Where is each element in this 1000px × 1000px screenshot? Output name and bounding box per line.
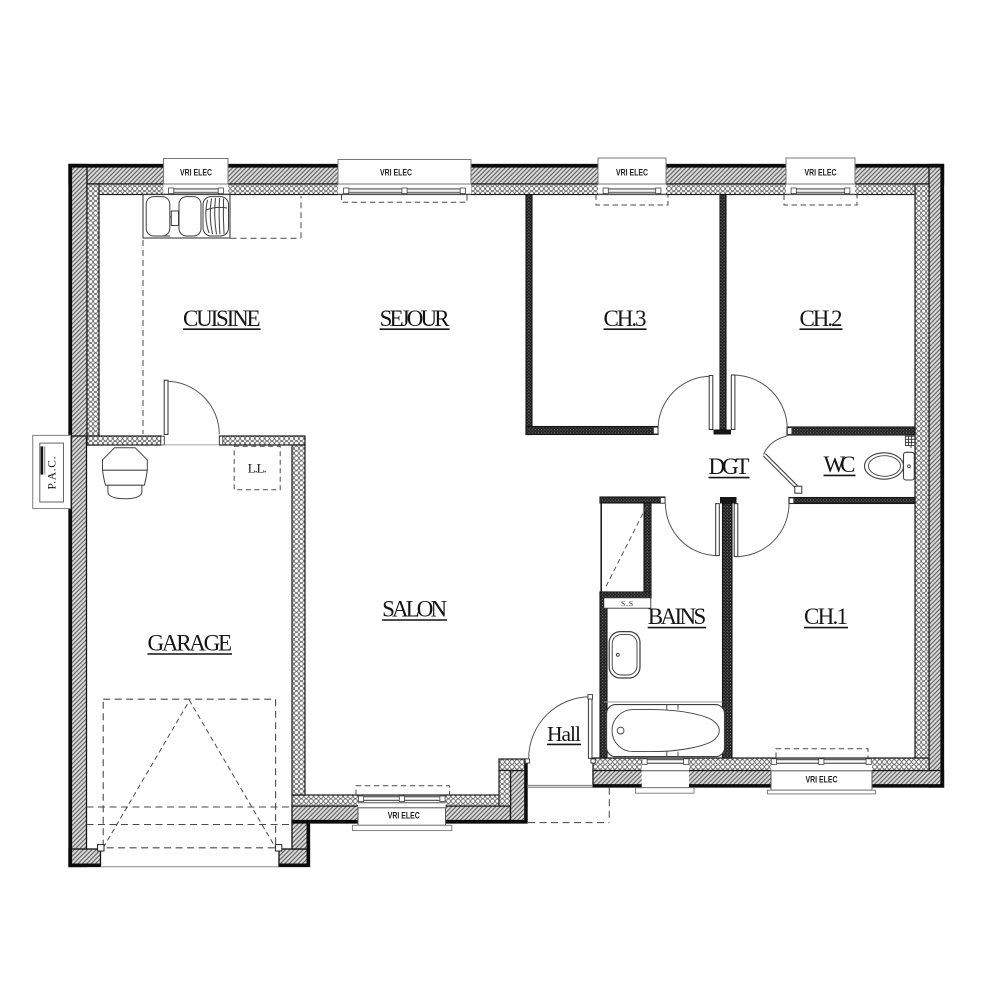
svg-text:VRI ELEC: VRI ELEC [388, 811, 420, 821]
svg-text:VRI ELEC: VRI ELEC [806, 774, 838, 784]
svg-text:CH.2: CH.2 [800, 306, 843, 331]
svg-text:BAINS: BAINS [648, 604, 707, 629]
svg-text:Hall: Hall [547, 722, 581, 746]
svg-text:VRI ELEC: VRI ELEC [805, 167, 837, 177]
svg-text:L.L.: L.L. [248, 461, 267, 476]
svg-text:WC: WC [824, 452, 856, 477]
svg-text:SEJOUR: SEJOUR [380, 306, 451, 331]
svg-text:VRI ELEC: VRI ELEC [380, 167, 412, 177]
svg-text:VRI ELEC: VRI ELEC [180, 167, 212, 177]
svg-text:VRI ELEC: VRI ELEC [616, 167, 648, 177]
svg-text:DGT: DGT [709, 454, 750, 479]
svg-text:S.S: S.S [621, 599, 633, 608]
svg-text:P.A.C.: P.A.C. [47, 456, 59, 489]
svg-text:GARAGE: GARAGE [148, 631, 232, 656]
svg-text:SALON: SALON [382, 597, 447, 622]
svg-text:CH.3: CH.3 [604, 306, 647, 331]
svg-text:CH.1: CH.1 [804, 604, 848, 629]
svg-text:CUISINE: CUISINE [183, 306, 260, 331]
